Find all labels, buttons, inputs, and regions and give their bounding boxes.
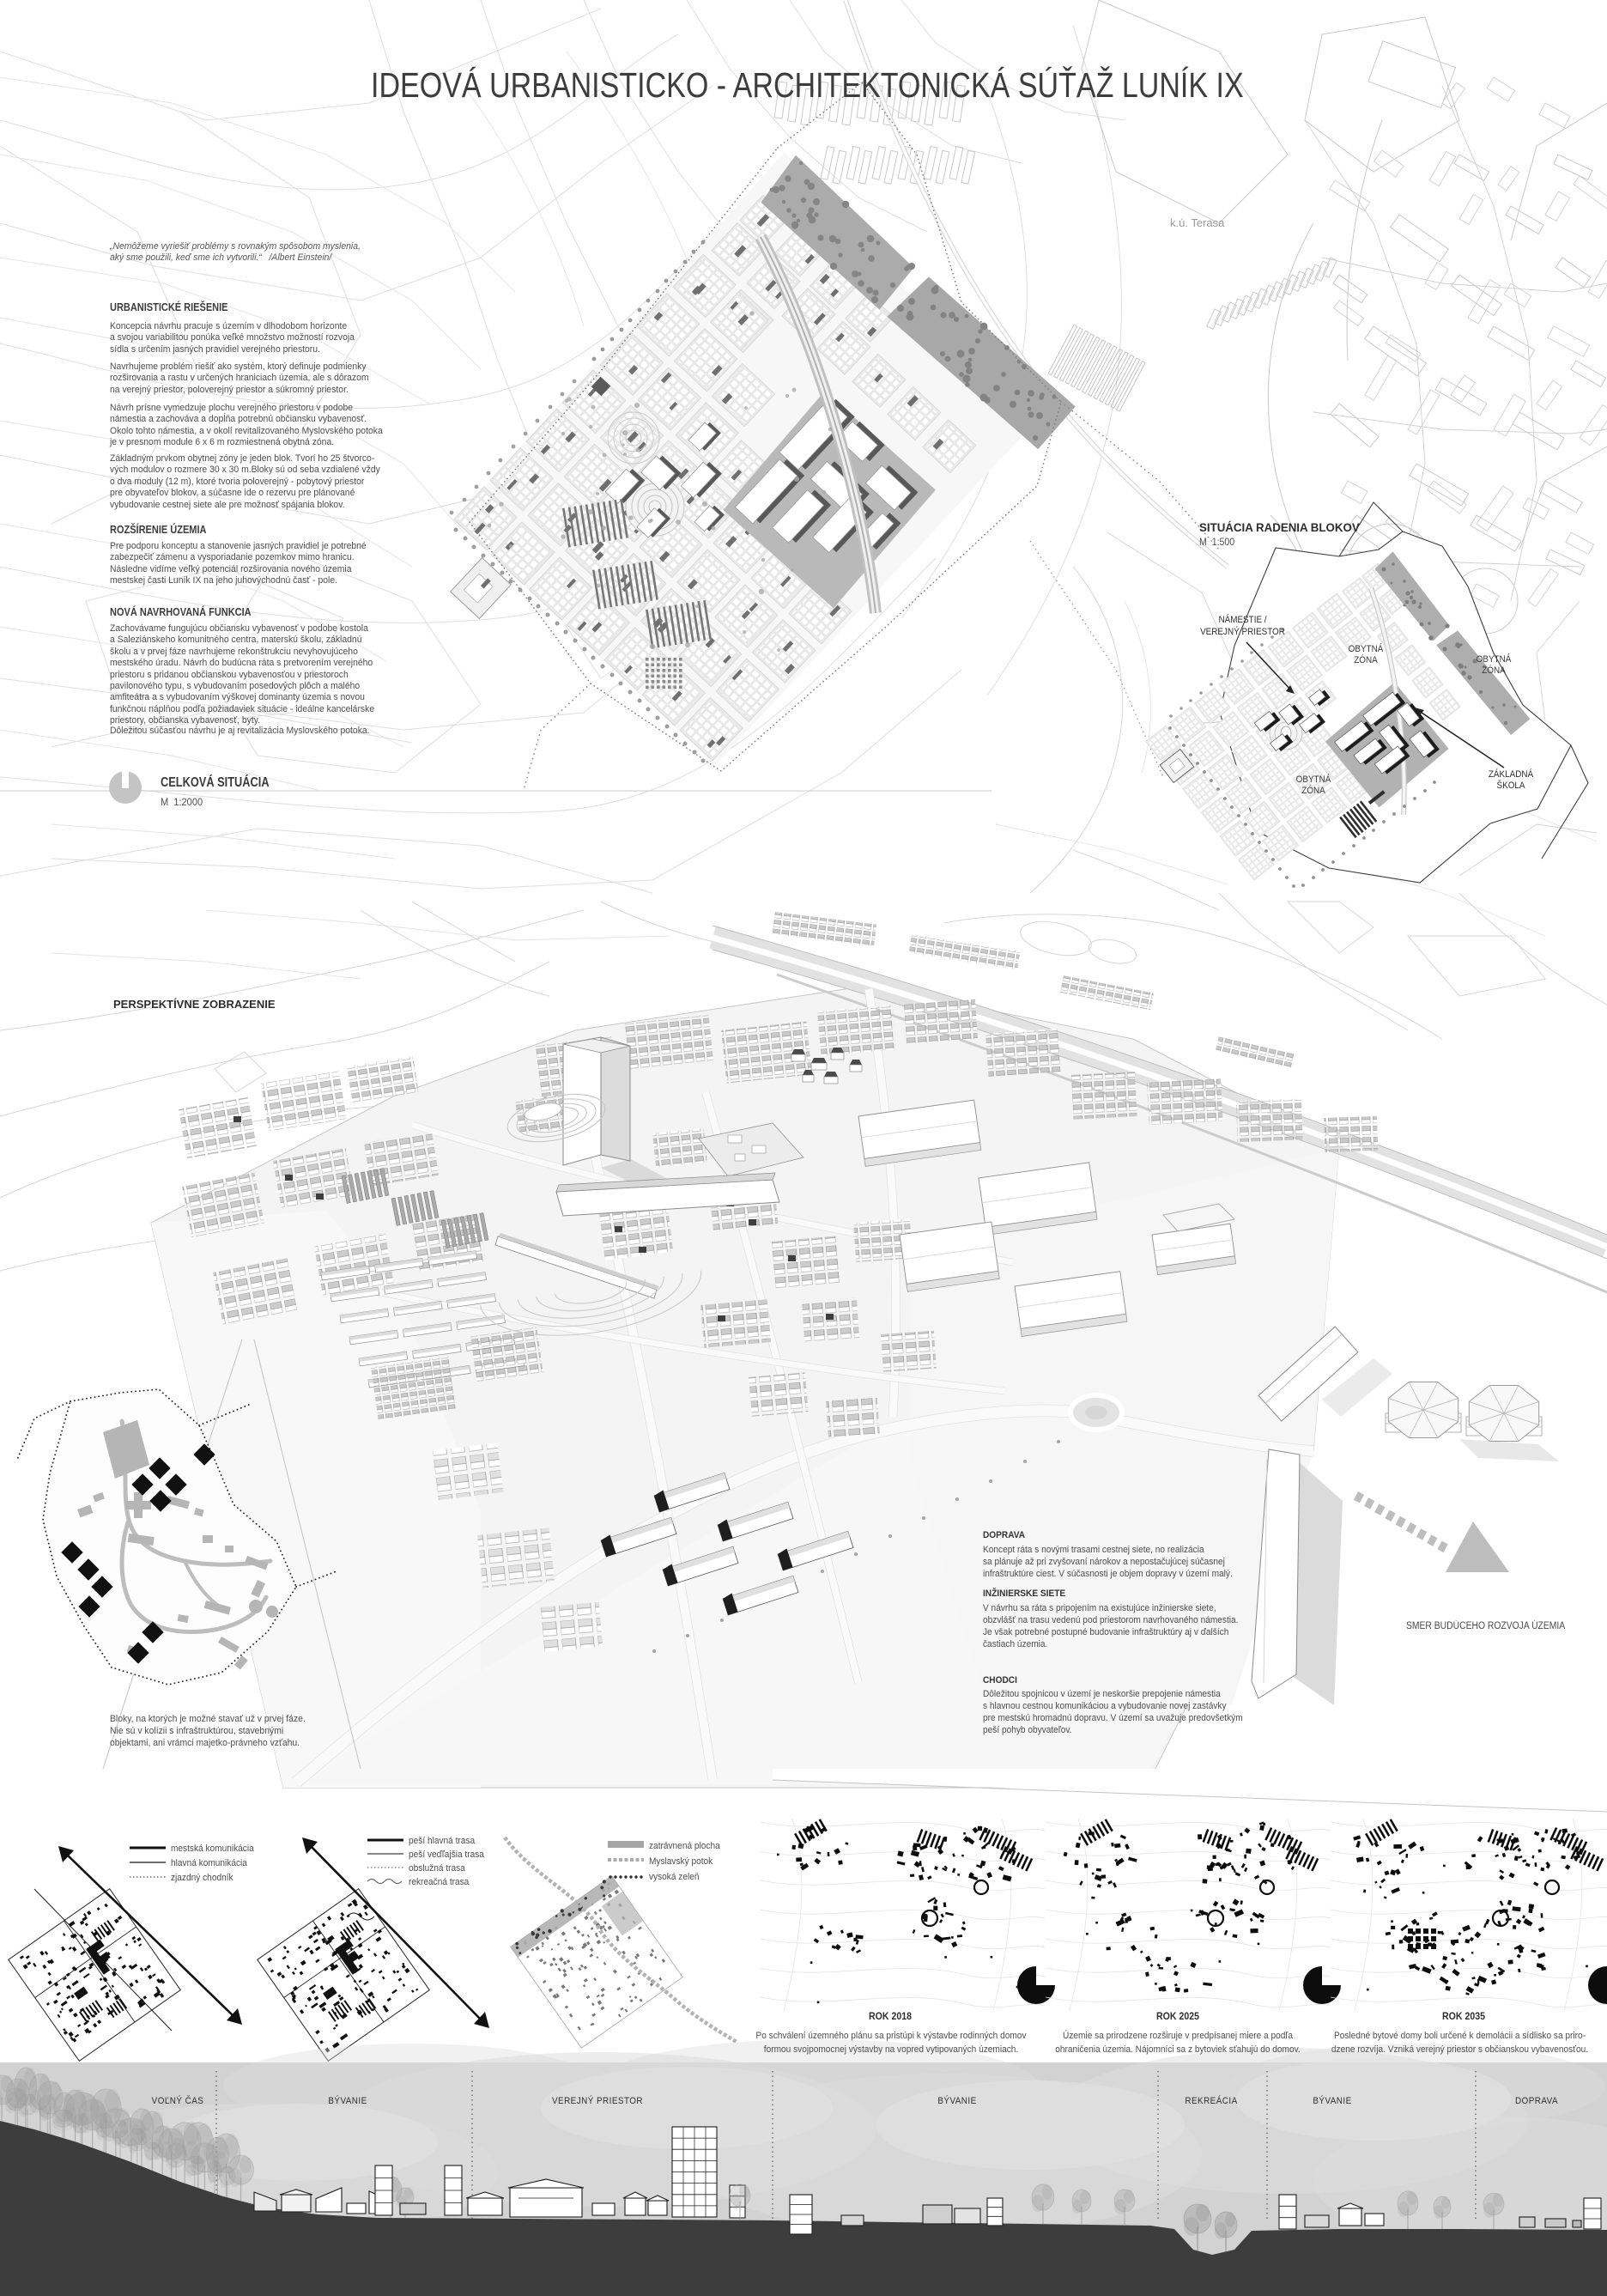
svg-text:k.ú. Terasa: k.ú. Terasa — [1170, 216, 1225, 229]
